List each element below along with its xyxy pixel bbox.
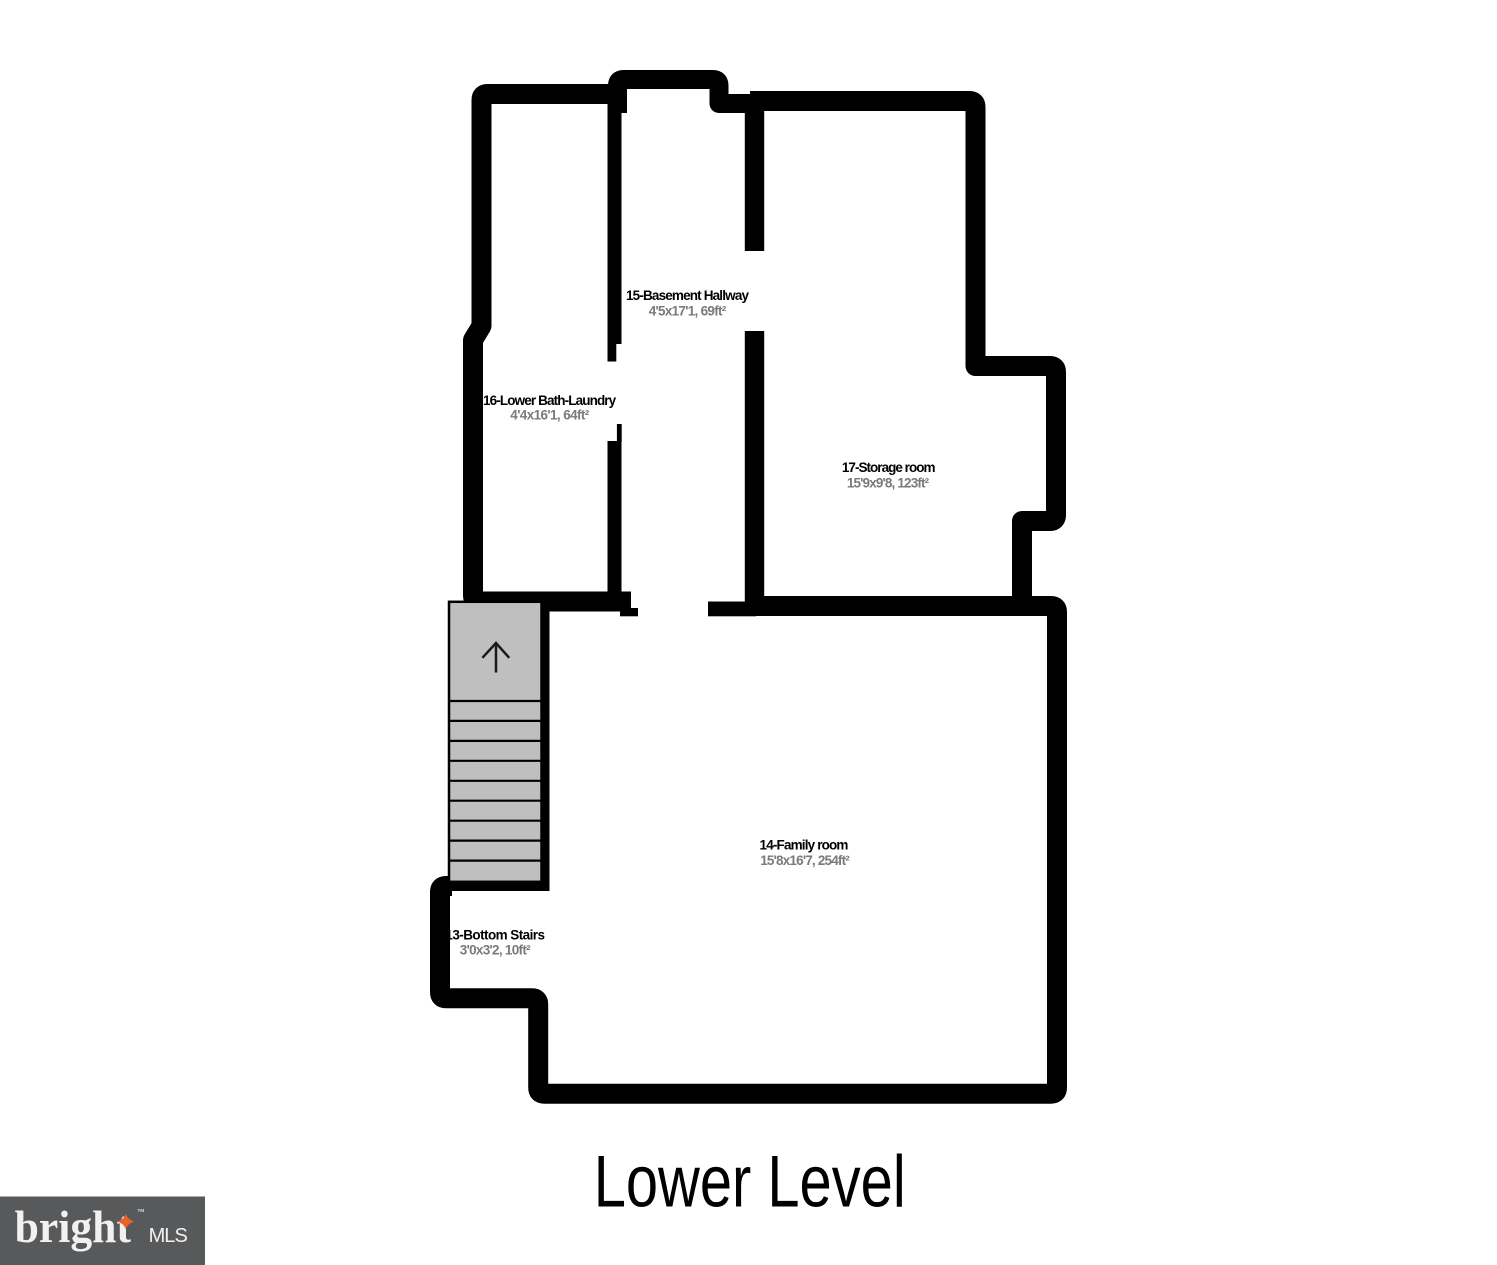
svg-text:15'9x9'8, 123ft²: 15'9x9'8, 123ft² [847, 475, 930, 490]
svg-text:bright: bright [15, 1201, 132, 1252]
svg-text:3'0x3'2, 10ft²: 3'0x3'2, 10ft² [460, 942, 531, 957]
svg-text:4'4x16'1, 64ft²: 4'4x16'1, 64ft² [510, 408, 590, 423]
svg-text:15-Basement Hallway: 15-Basement Hallway [626, 288, 749, 303]
svg-text:™: ™ [137, 1208, 145, 1217]
svg-text:Lower Level: Lower Level [594, 1139, 906, 1222]
svg-text:17-Storage room: 17-Storage room [842, 460, 936, 475]
svg-text:4'5x17'1, 69ft²: 4'5x17'1, 69ft² [649, 304, 727, 319]
svg-text:15'8x16'7, 254ft²: 15'8x16'7, 254ft² [760, 853, 850, 868]
svg-text:16-Lower Bath-Laundry: 16-Lower Bath-Laundry [483, 393, 617, 408]
svg-text:13-Bottom Stairs: 13-Bottom Stairs [445, 928, 545, 943]
svg-text:14-Family room: 14-Family room [760, 837, 849, 852]
svg-text:MLS: MLS [149, 1225, 191, 1247]
